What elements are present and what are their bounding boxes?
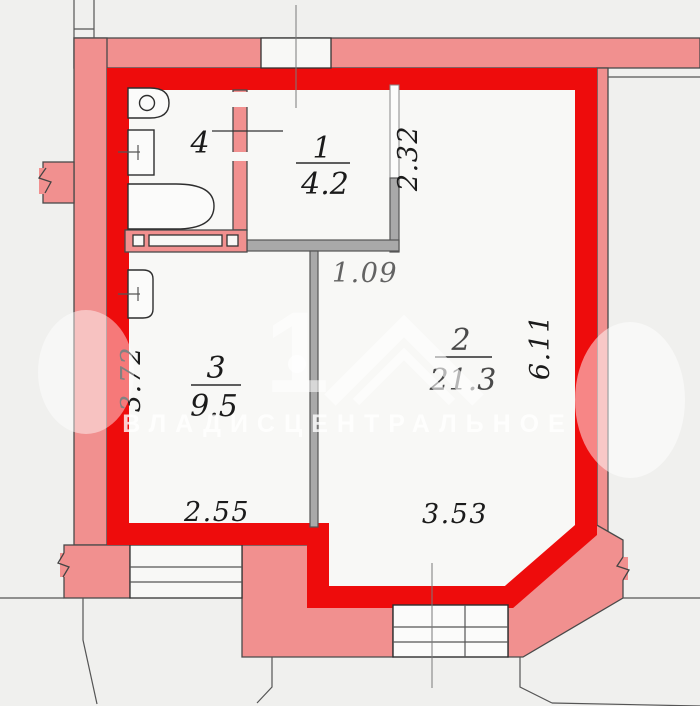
dim-room3-width: 2.55 <box>183 497 250 528</box>
dim-room2-width: 3.53 <box>422 499 488 530</box>
dim-hall-width: 1.09 <box>332 258 398 289</box>
room2-number: 2 <box>450 323 470 358</box>
outer-wall-top <box>74 38 700 68</box>
dim-room3-height: 3.72 <box>116 346 147 412</box>
room1-bottom-wall <box>247 240 399 251</box>
room2-room3-wall <box>310 251 318 527</box>
balcony-window-frame <box>393 605 508 657</box>
bathroom-wall-slot <box>227 235 238 246</box>
bathroom-door-gap <box>231 152 249 161</box>
outer-wall-right <box>597 68 608 543</box>
bathroom-door-gap <box>231 92 249 107</box>
room2-area: 21.3 <box>429 363 497 398</box>
room3-area: 9.5 <box>190 389 238 424</box>
outer-wall-left <box>74 38 107 545</box>
dim-room1-height: 2.32 <box>393 125 424 192</box>
room1-number: 1 <box>312 131 331 166</box>
bathtub <box>128 184 214 229</box>
room1-area: 4.2 <box>300 167 349 202</box>
room4-number: 4 <box>189 126 209 161</box>
floor-plan: 4 1 4.2 2 21.3 3 9.5 2.32 1.09 6.11 3.72… <box>0 0 700 706</box>
bathroom-wall-slot <box>133 235 144 246</box>
bottom-left-corner-block <box>64 545 130 598</box>
floor-plan-drawing: 4 1 4.2 2 21.3 3 9.5 2.32 1.09 6.11 3.72… <box>0 0 700 706</box>
room3-number: 3 <box>206 351 225 386</box>
balcony-window <box>393 605 508 657</box>
stairs <box>130 545 242 598</box>
toilet-bowl-icon <box>140 96 155 111</box>
bathroom-wall-slot-long <box>149 235 222 246</box>
dim-room2-height: 6.11 <box>525 314 556 380</box>
stairs-outline <box>130 545 242 598</box>
